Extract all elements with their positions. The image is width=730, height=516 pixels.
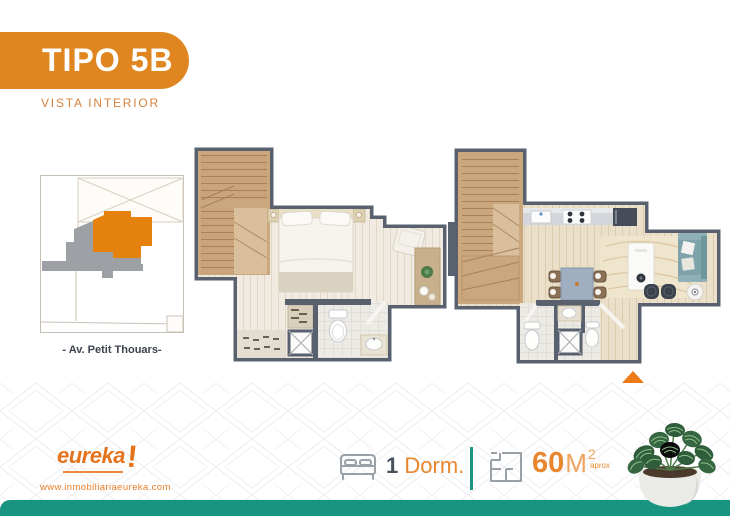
area-spec: 60 M 2 aprox	[532, 447, 610, 479]
bed-icon	[338, 452, 378, 482]
desk	[415, 248, 440, 305]
stove	[563, 210, 591, 224]
brand-tagline-bar	[63, 471, 123, 473]
stairs-upper	[195, 148, 270, 275]
brand-name: eureka	[57, 444, 125, 468]
bathroom-sink	[361, 335, 387, 355]
bedrooms-label: Dorm.	[404, 453, 464, 478]
spec-divider	[470, 447, 473, 490]
toilet	[329, 310, 347, 342]
floorplan-icon	[488, 450, 524, 484]
brand-exclamation: !	[126, 444, 139, 471]
street-label: - Av. Petit Thouars-	[30, 344, 194, 356]
brand-logo: eureka !	[57, 444, 207, 473]
brand-website: www.inmobiliariaeureka.com	[40, 482, 171, 493]
sofa	[678, 233, 707, 282]
tv-console	[628, 243, 654, 290]
floor-plan-living-level	[448, 146, 723, 374]
side-table	[687, 284, 703, 300]
shoe-rack	[288, 305, 313, 328]
bathroom2-wall	[536, 300, 600, 306]
bathroom-partition	[313, 302, 318, 358]
bathroom2-sink	[558, 306, 581, 321]
area-unit: M	[565, 447, 587, 479]
area-note: aprox	[590, 461, 610, 470]
page-title: TIPO 5B	[0, 42, 173, 79]
potted-plant-image	[608, 416, 726, 510]
toilet-3	[586, 322, 600, 347]
kitchen-counter	[523, 208, 637, 226]
title-banner: TIPO 5B	[0, 32, 189, 89]
page-subtitle: VISTA INTERIOR	[41, 96, 160, 110]
entrance-triangle-icon	[622, 371, 644, 383]
exterior-wall-stub	[448, 222, 455, 276]
bedrooms-spec: 1 Dorm.	[386, 453, 464, 479]
closet	[237, 330, 285, 358]
site-map-building-tab	[102, 271, 113, 278]
toilet-2	[524, 322, 540, 350]
bathroom-wall	[285, 299, 371, 305]
area-value: 60	[532, 447, 564, 479]
site-map	[40, 175, 184, 333]
area-superscript: 2	[588, 447, 596, 461]
stairs-lower	[458, 152, 523, 304]
bed	[268, 208, 365, 292]
flyer-page: TIPO 5B VISTA INTERIOR - Av. Petit Thoua…	[0, 0, 730, 516]
floor-plan-bedroom-level	[181, 142, 451, 366]
bedrooms-value: 1	[386, 453, 398, 478]
